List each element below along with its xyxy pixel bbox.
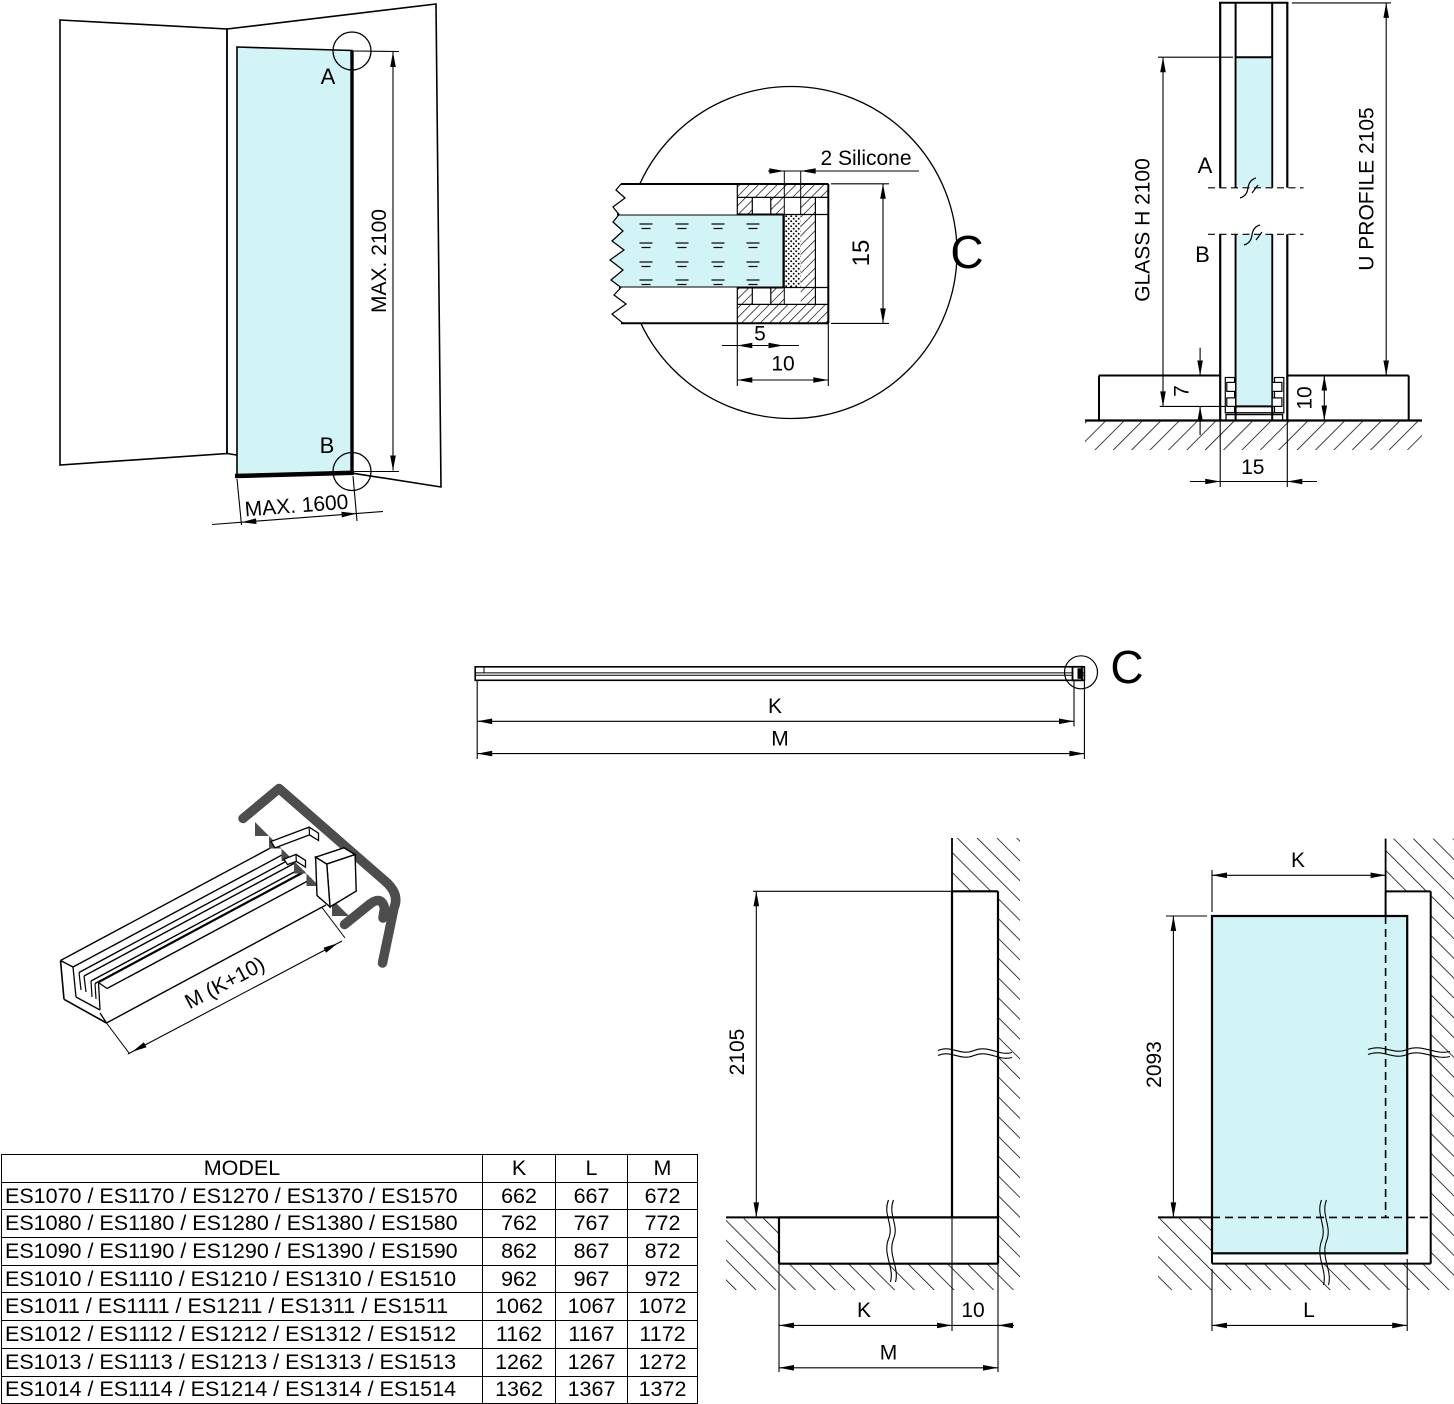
svg-text:10: 10: [771, 353, 794, 376]
svg-text:MAX. 1600: MAX. 1600: [244, 491, 349, 522]
svg-text:A: A: [1198, 153, 1213, 178]
svg-text:15: 15: [848, 240, 875, 267]
svg-text:10: 10: [1294, 386, 1317, 409]
svg-text:A: A: [321, 64, 336, 89]
svg-text:2093: 2093: [1143, 1041, 1166, 1088]
svg-text:10: 10: [961, 1299, 984, 1322]
svg-text:5: 5: [754, 323, 766, 346]
svg-text:7: 7: [1171, 385, 1194, 397]
svg-text:B: B: [320, 433, 335, 458]
svg-text:M: M: [771, 727, 789, 750]
svg-text:C: C: [950, 226, 983, 278]
svg-text:K: K: [1291, 849, 1305, 872]
svg-text:2 Silicone: 2 Silicone: [820, 147, 911, 170]
svg-text:C: C: [1110, 641, 1143, 693]
svg-text:K: K: [857, 1299, 871, 1322]
svg-text:15: 15: [1241, 456, 1264, 479]
svg-text:B: B: [1195, 242, 1210, 267]
svg-text:L: L: [1303, 1299, 1315, 1322]
svg-text:GLASS H 2100: GLASS H 2100: [1132, 158, 1155, 302]
svg-text:2105: 2105: [726, 1029, 749, 1076]
svg-text:MAX. 2100: MAX. 2100: [368, 209, 391, 313]
svg-text:M: M: [880, 1342, 898, 1365]
svg-text:K: K: [768, 695, 782, 718]
svg-text:U PROFILE 2105: U PROFILE 2105: [1356, 107, 1379, 270]
